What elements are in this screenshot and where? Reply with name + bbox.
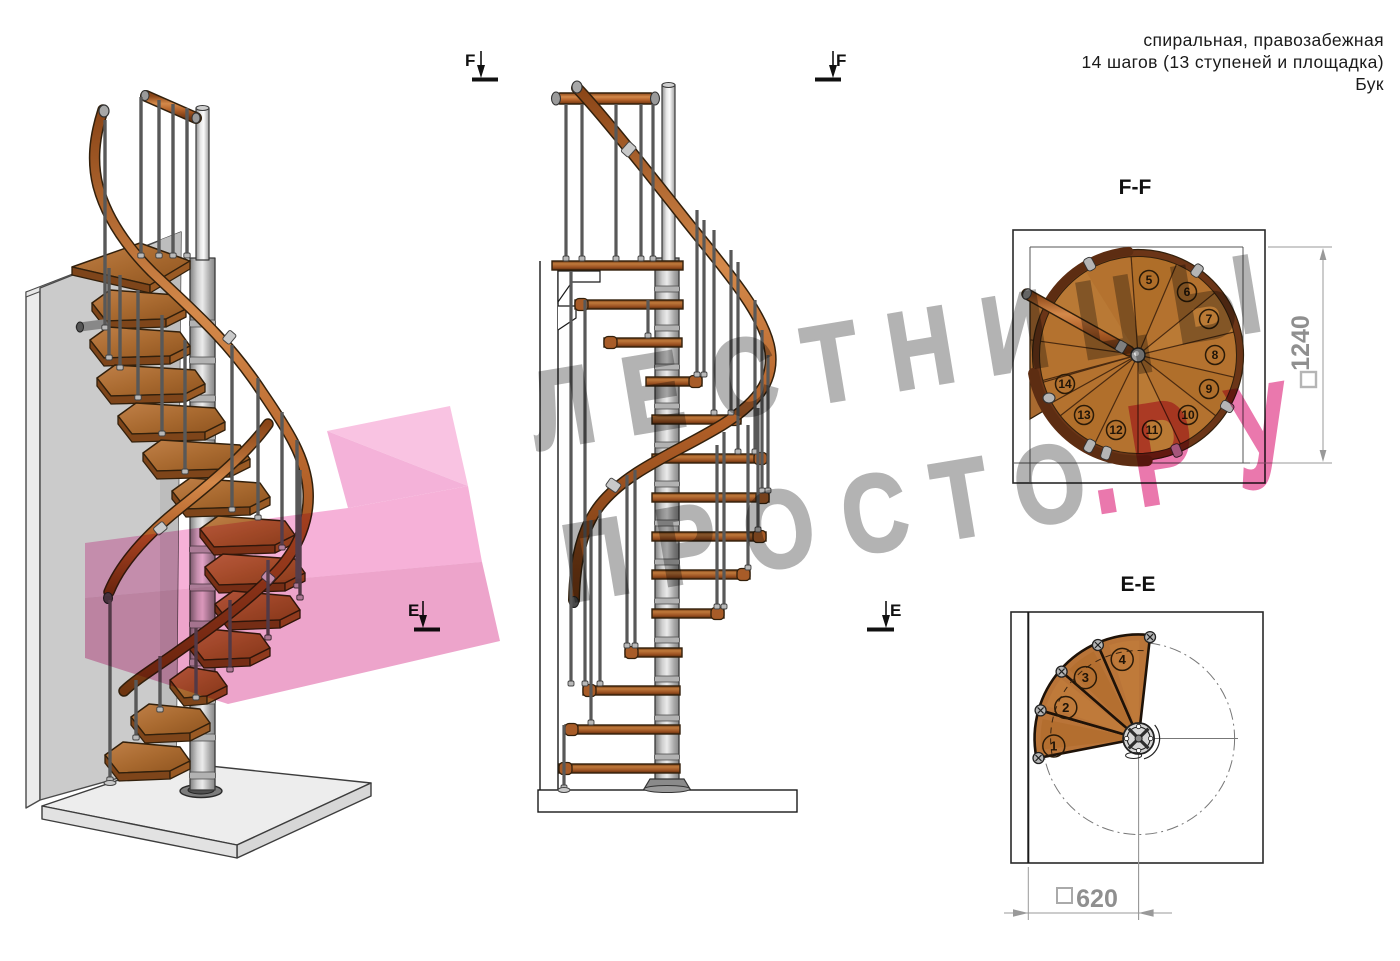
svg-text:E: E <box>890 601 901 620</box>
svg-text:спиральная, правозабежная: спиральная, правозабежная <box>1143 30 1384 50</box>
svg-text:Бук: Бук <box>1355 74 1384 94</box>
svg-text:9: 9 <box>1206 382 1213 396</box>
svg-text:F: F <box>465 51 475 70</box>
svg-text:1: 1 <box>1050 739 1057 754</box>
svg-text:2: 2 <box>1062 700 1069 715</box>
svg-text:14 шагов (13 ступеней и площад: 14 шагов (13 ступеней и площадка) <box>1082 52 1385 72</box>
svg-text:3: 3 <box>1082 670 1089 685</box>
svg-text:F: F <box>836 51 846 70</box>
svg-text:12: 12 <box>1109 423 1123 437</box>
svg-text:4: 4 <box>1119 652 1127 667</box>
svg-text:620: 620 <box>1076 885 1118 913</box>
svg-text:E-E: E-E <box>1120 573 1155 596</box>
svg-text:F-F: F-F <box>1119 176 1152 199</box>
